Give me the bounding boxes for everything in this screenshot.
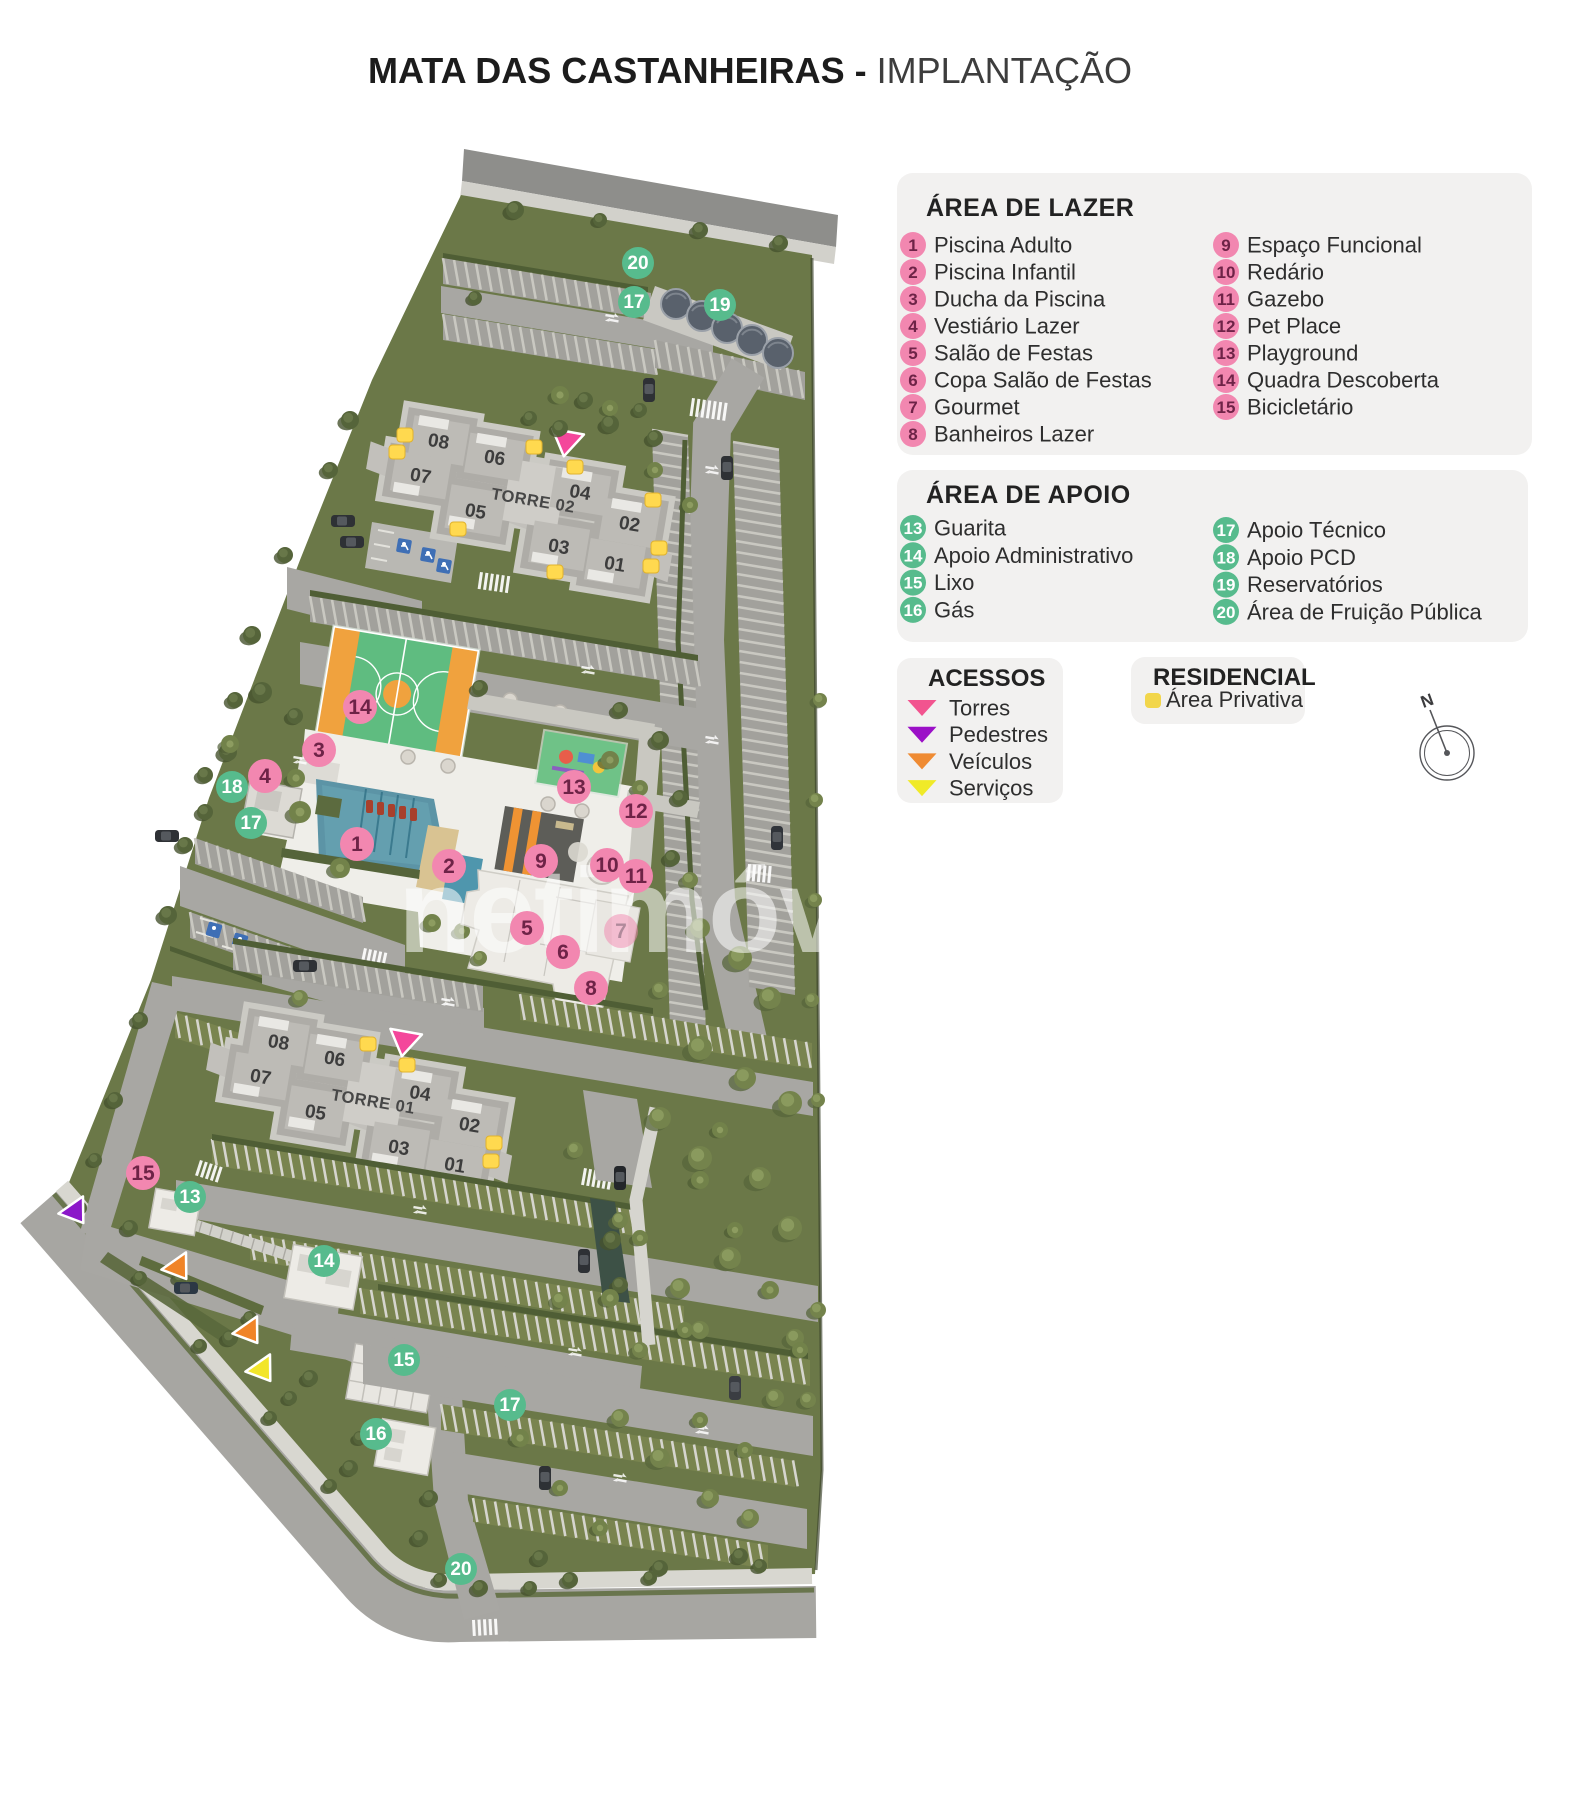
svg-text:Salão de Festas: Salão de Festas xyxy=(934,341,1093,366)
svg-text:19: 19 xyxy=(1217,576,1236,595)
svg-text:05: 05 xyxy=(463,500,488,524)
svg-text:Piscina Adulto: Piscina Adulto xyxy=(934,233,1072,258)
svg-text:20: 20 xyxy=(450,1559,471,1580)
svg-text:16: 16 xyxy=(365,1424,386,1445)
svg-text:1: 1 xyxy=(351,833,363,856)
svg-text:Pet Place: Pet Place xyxy=(1247,314,1341,339)
svg-text:Serviços: Serviços xyxy=(949,776,1033,801)
svg-text:08: 08 xyxy=(266,1031,290,1055)
svg-text:10: 10 xyxy=(1217,263,1236,282)
svg-text:Gourmet: Gourmet xyxy=(934,395,1020,420)
svg-text:8: 8 xyxy=(908,425,917,444)
svg-text:14: 14 xyxy=(313,1251,335,1272)
svg-text:Guarita: Guarita xyxy=(934,516,1007,541)
svg-text:13: 13 xyxy=(562,776,585,799)
svg-text:02: 02 xyxy=(617,513,641,537)
svg-text:03: 03 xyxy=(387,1136,411,1160)
svg-text:Apoio Técnico: Apoio Técnico xyxy=(1247,518,1386,543)
svg-text:20: 20 xyxy=(1217,603,1236,622)
svg-text:2: 2 xyxy=(908,263,917,282)
svg-text:13: 13 xyxy=(904,519,923,538)
svg-text:13: 13 xyxy=(179,1187,200,1208)
svg-text:Vestiário Lazer: Vestiário Lazer xyxy=(934,314,1080,339)
svg-text:Gás: Gás xyxy=(934,597,974,622)
svg-text:14: 14 xyxy=(1217,371,1236,390)
svg-text:Banheiros Lazer: Banheiros Lazer xyxy=(934,422,1094,447)
svg-text:07: 07 xyxy=(408,464,432,488)
svg-text:15: 15 xyxy=(1217,398,1236,417)
svg-text:Apoio Administrativo: Apoio Administrativo xyxy=(934,543,1133,568)
svg-text:4: 4 xyxy=(259,765,271,788)
svg-text:05: 05 xyxy=(303,1101,328,1125)
svg-text:Reservatórios: Reservatórios xyxy=(1247,572,1383,597)
svg-text:15: 15 xyxy=(131,1162,155,1185)
svg-text:06: 06 xyxy=(482,446,506,470)
svg-text:18: 18 xyxy=(1217,548,1236,567)
svg-text:Redário: Redário xyxy=(1247,260,1324,285)
svg-text:ÁREA DE APOIO: ÁREA DE APOIO xyxy=(926,480,1131,509)
svg-text:08: 08 xyxy=(426,430,450,454)
svg-text:Veículos: Veículos xyxy=(949,749,1032,774)
svg-text:15: 15 xyxy=(393,1350,415,1371)
svg-text:11: 11 xyxy=(1217,290,1235,309)
svg-text:Área de Fruição Pública: Área de Fruição Pública xyxy=(1247,599,1483,624)
svg-text:Gazebo: Gazebo xyxy=(1247,287,1324,312)
svg-text:Piscina Infantil: Piscina Infantil xyxy=(934,260,1076,285)
svg-text:8: 8 xyxy=(585,977,597,1000)
svg-text:01: 01 xyxy=(602,553,627,577)
svg-text:Pedestres: Pedestres xyxy=(949,722,1048,747)
svg-text:12: 12 xyxy=(1217,317,1236,336)
svg-text:3: 3 xyxy=(908,290,917,309)
svg-text:Bicicletário: Bicicletário xyxy=(1247,395,1353,420)
svg-text:6: 6 xyxy=(557,941,569,964)
svg-text:5: 5 xyxy=(908,344,917,363)
svg-text:Copa Salão de Festas: Copa Salão de Festas xyxy=(934,368,1152,393)
svg-text:06: 06 xyxy=(322,1047,346,1071)
svg-text:03: 03 xyxy=(547,535,571,559)
svg-text:18: 18 xyxy=(221,777,242,798)
svg-text:17: 17 xyxy=(1217,521,1236,540)
svg-text:15: 15 xyxy=(904,574,923,593)
svg-text:Lixo: Lixo xyxy=(934,570,974,595)
svg-text:ACESSOS: ACESSOS xyxy=(928,665,1045,692)
svg-text:17: 17 xyxy=(240,813,261,834)
svg-text:13: 13 xyxy=(1217,344,1236,363)
svg-text:07: 07 xyxy=(248,1065,272,1089)
svg-text:17: 17 xyxy=(623,292,644,313)
svg-text:4: 4 xyxy=(908,317,918,336)
svg-text:9: 9 xyxy=(1221,236,1230,255)
svg-text:1: 1 xyxy=(908,236,917,255)
svg-text:7: 7 xyxy=(615,920,627,943)
svg-text:12: 12 xyxy=(624,800,647,823)
svg-text:Playground: Playground xyxy=(1247,341,1358,366)
svg-text:9: 9 xyxy=(535,850,547,873)
svg-text:Área Privativa: Área Privativa xyxy=(1166,687,1304,712)
svg-text:10: 10 xyxy=(595,854,618,877)
svg-text:Torres: Torres xyxy=(949,696,1010,721)
svg-text:Ducha da Piscina: Ducha da Piscina xyxy=(934,287,1106,312)
svg-text:6: 6 xyxy=(908,371,917,390)
svg-text:Quadra Descoberta: Quadra Descoberta xyxy=(1247,368,1440,393)
svg-text:19: 19 xyxy=(709,295,730,316)
svg-text:11: 11 xyxy=(625,865,648,888)
svg-text:Apoio PCD: Apoio PCD xyxy=(1247,545,1356,570)
svg-text:02: 02 xyxy=(457,1114,481,1138)
svg-text:3: 3 xyxy=(313,739,325,762)
svg-text:Espaço Funcional: Espaço Funcional xyxy=(1247,233,1422,258)
svg-text:ÁREA DE LAZER: ÁREA DE LAZER xyxy=(926,193,1134,222)
svg-text:17: 17 xyxy=(499,1395,520,1416)
svg-text:MATA DAS CASTANHEIRAS - IMPLAN: MATA DAS CASTANHEIRAS - IMPLANTAÇÃO xyxy=(368,50,1132,91)
svg-text:5: 5 xyxy=(521,917,533,940)
svg-text:20: 20 xyxy=(627,253,648,274)
svg-text:14: 14 xyxy=(904,546,923,565)
svg-text:14: 14 xyxy=(348,696,372,719)
svg-text:2: 2 xyxy=(443,855,455,878)
svg-text:16: 16 xyxy=(904,601,923,620)
svg-text:7: 7 xyxy=(908,398,917,417)
